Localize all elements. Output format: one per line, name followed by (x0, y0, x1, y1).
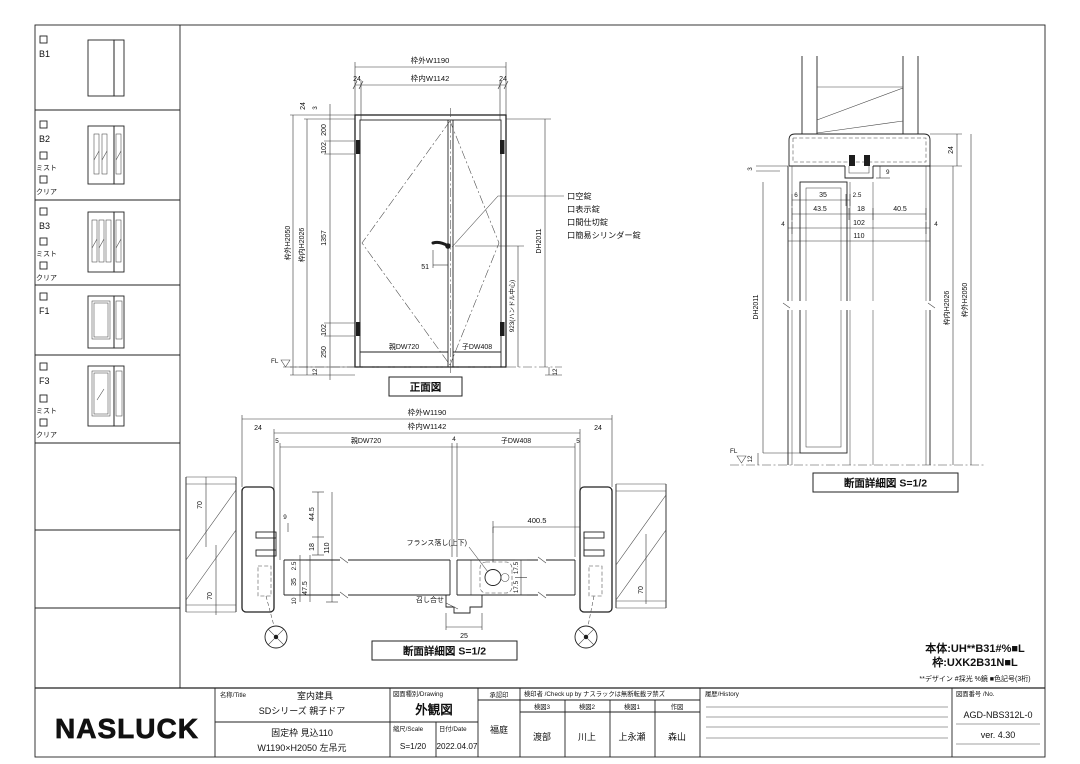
fl-marker-section: FL (730, 448, 746, 463)
right-jamb (580, 487, 612, 612)
sheet-border (35, 25, 1045, 757)
dim-text: 70 (207, 592, 214, 600)
cad-drawing-sheet: B1 B2 ミスト クリア (0, 0, 1080, 764)
check-role: 検図2 (579, 702, 596, 711)
spec-line2: W1190×H2050 左吊元 (257, 742, 346, 753)
front-elevation-view: 51 FL 枠外W1190 24 枠内W1142 24 (271, 55, 641, 396)
right-jamb-stop (584, 532, 604, 556)
checkbox-f3-mist (40, 395, 47, 402)
child-leaf-label: 子DW408 (462, 343, 492, 351)
dim-text: 9 (886, 169, 890, 176)
dim-text: 102 (321, 324, 328, 336)
dim-text: 102 (853, 220, 865, 227)
option-label-mist: ミスト (36, 407, 57, 415)
door-icon-b1 (88, 40, 124, 96)
head-jamb (789, 134, 930, 178)
checkbox-f3-clear (40, 419, 47, 426)
dim-text: 24 (499, 76, 507, 83)
dim-text: 400.5 (527, 516, 546, 525)
drawing-number: AGD-NBS312L-0 (963, 710, 1032, 720)
front-top-dims: 枠外W1190 24 枠内W1142 24 (353, 55, 508, 120)
drawing-header: 図面種別/Drawing (393, 689, 444, 698)
product-code-notes: 本体:UH**B31#%■L 枠:UXK2B31N■L **デザイン #採光 %… (919, 641, 1030, 683)
scale-header: 縮尺/Scale (393, 724, 424, 733)
lock-option: 口表示錠 (567, 204, 600, 214)
lock-option: 口簡易シリンダー錠 (567, 230, 641, 240)
dim-text: 枠外H2050 (960, 283, 969, 318)
dim-text: 17.5 (513, 580, 520, 593)
variant-row-b3: B3 ミスト クリア (36, 208, 124, 282)
dim-text: 子DW408 (501, 437, 531, 445)
dim-text: 枠外H2050 (283, 226, 292, 261)
nasluck-logo: NASLUCK (55, 713, 199, 744)
dim-text: 44.5 (309, 507, 316, 521)
door-icon-f1 (88, 296, 124, 348)
dim-text: 110 (324, 542, 331, 553)
dim-text: 枠外W1190 (408, 407, 447, 417)
check-name: 森山 (668, 731, 686, 742)
dim-text: 200 (321, 124, 328, 136)
dim-text: 51 (421, 264, 429, 271)
checkbox-b2-clear (40, 176, 47, 183)
dim-text: 18 (857, 206, 865, 213)
view-title-text: 断面詳細図 S=1/2 (403, 645, 486, 658)
meeting-stile-plan (446, 560, 482, 613)
variant-label: B2 (39, 134, 50, 144)
scale-value: S=1/20 (400, 742, 427, 751)
dim-text: 3 (747, 167, 754, 171)
checkbox-f3 (40, 363, 47, 370)
view-title-text: 正面図 (410, 382, 442, 394)
name-line2: SDシリーズ 親子ドア (259, 705, 346, 716)
flush-bolt-label: フランス落し(上下) (406, 538, 467, 547)
check-role: 検図3 (534, 702, 551, 711)
view-title-text: 断面詳細図 S=1/2 (844, 477, 927, 490)
hsection-left-dims: 70 70 9 44.5 18 110 2.5 35 10 47.5 (197, 477, 338, 615)
dim-text: 枠内H2026 (297, 228, 306, 263)
lock-option: 口間仕切錠 (567, 217, 608, 227)
dim-text: 枠内H2026 (942, 291, 951, 326)
code-legend: **デザイン #採光 %鏡 ■色記号(3桁) (919, 674, 1030, 683)
date-header: 日付/Date (439, 724, 467, 733)
dim-text: 枠外W1190 (411, 55, 450, 65)
dim-text: 2.5 (291, 561, 298, 570)
dim-text: 25 (460, 633, 468, 640)
dim-text: 10 (291, 597, 298, 605)
meeting-label: 召し合せ (416, 595, 444, 604)
dim-text: 4 (934, 221, 938, 228)
dim-text: 9 (283, 514, 287, 521)
left-wall (186, 477, 236, 612)
approval-header: 承認印 (490, 690, 509, 699)
dim-text: 1357 (321, 230, 328, 246)
dim-text: 4 (781, 221, 785, 228)
name-header: 名称/Title (220, 690, 247, 699)
dim-text: 35 (819, 192, 827, 199)
dim-text: 250 (321, 346, 328, 358)
dim-text: 70 (197, 501, 204, 509)
lever-handle (433, 242, 451, 248)
hinge-marks (356, 140, 505, 336)
dim-text: 70 (638, 586, 645, 594)
dim-text: 47.5 (302, 581, 309, 595)
spec-line1: 固定枠 見込110 (271, 727, 333, 738)
wall-framing (802, 56, 918, 134)
dim-handle-51: 51 (421, 250, 448, 271)
dim-text: 12 (552, 368, 559, 376)
option-label-clear: クリア (36, 274, 57, 282)
dim-text: 110 (853, 233, 864, 240)
approver-name: 福庭 (490, 724, 508, 735)
check-name: 上永瀬 (618, 731, 645, 742)
dim-text: 12 (312, 368, 319, 376)
dim-text: 102 (321, 142, 328, 154)
variant-row-f3: F3 ミスト クリア (36, 363, 124, 439)
door-icon-b3 (88, 212, 124, 272)
fl-marker: FL (271, 358, 290, 367)
horizontal-section-view: 枠外W1190 24 枠内W1142 24 5 親DW720 4 子DW408 … (186, 407, 666, 660)
title-block: NASLUCK 名称/Title 室内建具 SDシリーズ 親子ドア 固定枠 見込… (35, 688, 1045, 757)
check-role: 検図1 (624, 702, 641, 711)
variant-sidebar: B1 B2 ミスト クリア (35, 25, 180, 688)
hsection-mid-dims: 400.5 フランス落し(上下) 17.5 17.5 召し合せ 25 70 (406, 516, 646, 640)
option-label-mist: ミスト (36, 164, 57, 172)
check-name: 川上 (578, 732, 596, 742)
variant-row-b1: B1 (39, 36, 124, 96)
front-view-title: 正面図 (389, 377, 462, 396)
checkbox-f1 (40, 293, 47, 300)
dim-text: 24 (254, 425, 262, 432)
check-name: 渡部 (533, 731, 551, 742)
vertical-section-view: FL 3 24 6 35 2.5 43.5 18 (730, 56, 985, 492)
checkbox-b3 (40, 208, 47, 215)
fl-label: FL (730, 448, 738, 455)
number-header: 図面番号 /No. (956, 690, 995, 698)
checkbox-b2-mist (40, 152, 47, 159)
dim-text: 12 (747, 455, 754, 463)
variant-row-f1: F1 (39, 293, 124, 348)
parent-leaf-label: 親DW720 (389, 342, 419, 351)
checkbox-b1 (40, 36, 47, 43)
front-left-dims: 枠外H2050 枠内H2026 24 3 200 102 1357 102 25… (283, 102, 355, 380)
dim-text: 4 (452, 436, 456, 443)
door-icon-b2 (88, 126, 124, 184)
history-header: 履歴/History (705, 690, 740, 698)
dim-text: 24 (594, 425, 602, 432)
left-jamb-stop (256, 532, 276, 556)
dim-text: 親DW720 (351, 436, 381, 445)
dim-text: 枠内W1142 (411, 73, 450, 83)
dim-text: 5 (576, 438, 580, 445)
dim-text: 枠内W1142 (408, 421, 447, 431)
front-right-dims: DH2011 923(ハンドル中心) 12 (455, 119, 562, 376)
dim-text: 43.5 (813, 206, 827, 213)
dim-text: 17.5 (513, 561, 520, 574)
lock-option: 口空錠 (567, 191, 592, 201)
dim-text: 923(ハンドル中心) (507, 280, 516, 332)
check-header: 検印者 /Check up by ナスラックは無断転載ヲ禁ズ (524, 689, 665, 698)
option-label-clear: クリア (36, 188, 57, 196)
hsection-title: 断面詳細図 S=1/2 (372, 641, 517, 660)
lock-options: 口空錠 口表示錠 口間仕切錠 口簡易シリンダー錠 (452, 191, 641, 247)
hsection-top-dims: 枠外W1190 24 枠内W1142 24 5 親DW720 4 子DW408 … (242, 407, 612, 560)
dim-text: 35 (291, 578, 298, 586)
option-label-clear: クリア (36, 431, 57, 439)
vsection-title: 断面詳細図 S=1/2 (813, 473, 958, 492)
dim-text: 3 (312, 106, 319, 110)
variant-row-b2: B2 ミスト クリア (36, 121, 124, 196)
frame-code: 枠:UXK2B31N■L (932, 655, 1018, 669)
dim-text: 24 (300, 102, 307, 110)
variant-label: F3 (39, 376, 50, 386)
dim-text: 24 (948, 146, 955, 154)
variant-label: B3 (39, 221, 50, 231)
dim-text: 2.5 (853, 192, 862, 199)
option-label-mist: ミスト (36, 250, 57, 258)
dim-text: 18 (309, 543, 316, 551)
name-line1: 室内建具 (297, 690, 333, 701)
variant-label: B1 (39, 49, 50, 59)
body-code: 本体:UH**B31#%■L (925, 641, 1025, 655)
right-hinge (575, 566, 602, 648)
drawing-version: ver. 4.30 (981, 730, 1016, 740)
dim-text: DH2011 (753, 294, 760, 319)
dim-text: 5 (275, 438, 279, 445)
checkbox-b3-clear (40, 262, 47, 269)
variant-label: F1 (39, 306, 50, 316)
drawing-name: 外観図 (414, 702, 453, 717)
dim-text: 6 (794, 192, 798, 199)
dim-text: 24 (353, 76, 361, 83)
checkbox-b3-mist (40, 238, 47, 245)
left-hinge (258, 566, 287, 648)
date-value: 2022.04.07 (437, 742, 478, 751)
check-role: 作図 (671, 702, 684, 711)
checkbox-b2 (40, 121, 47, 128)
dim-text: DH2011 (536, 228, 543, 253)
vsection-dims: 3 24 6 35 2.5 43.5 18 40.5 4 102 (747, 134, 971, 465)
drawing-canvas: B1 B2 ミスト クリア (0, 0, 1080, 764)
dim-text: 40.5 (893, 206, 907, 213)
fl-label: FL (271, 358, 279, 365)
door-icon-f3 (88, 366, 124, 426)
